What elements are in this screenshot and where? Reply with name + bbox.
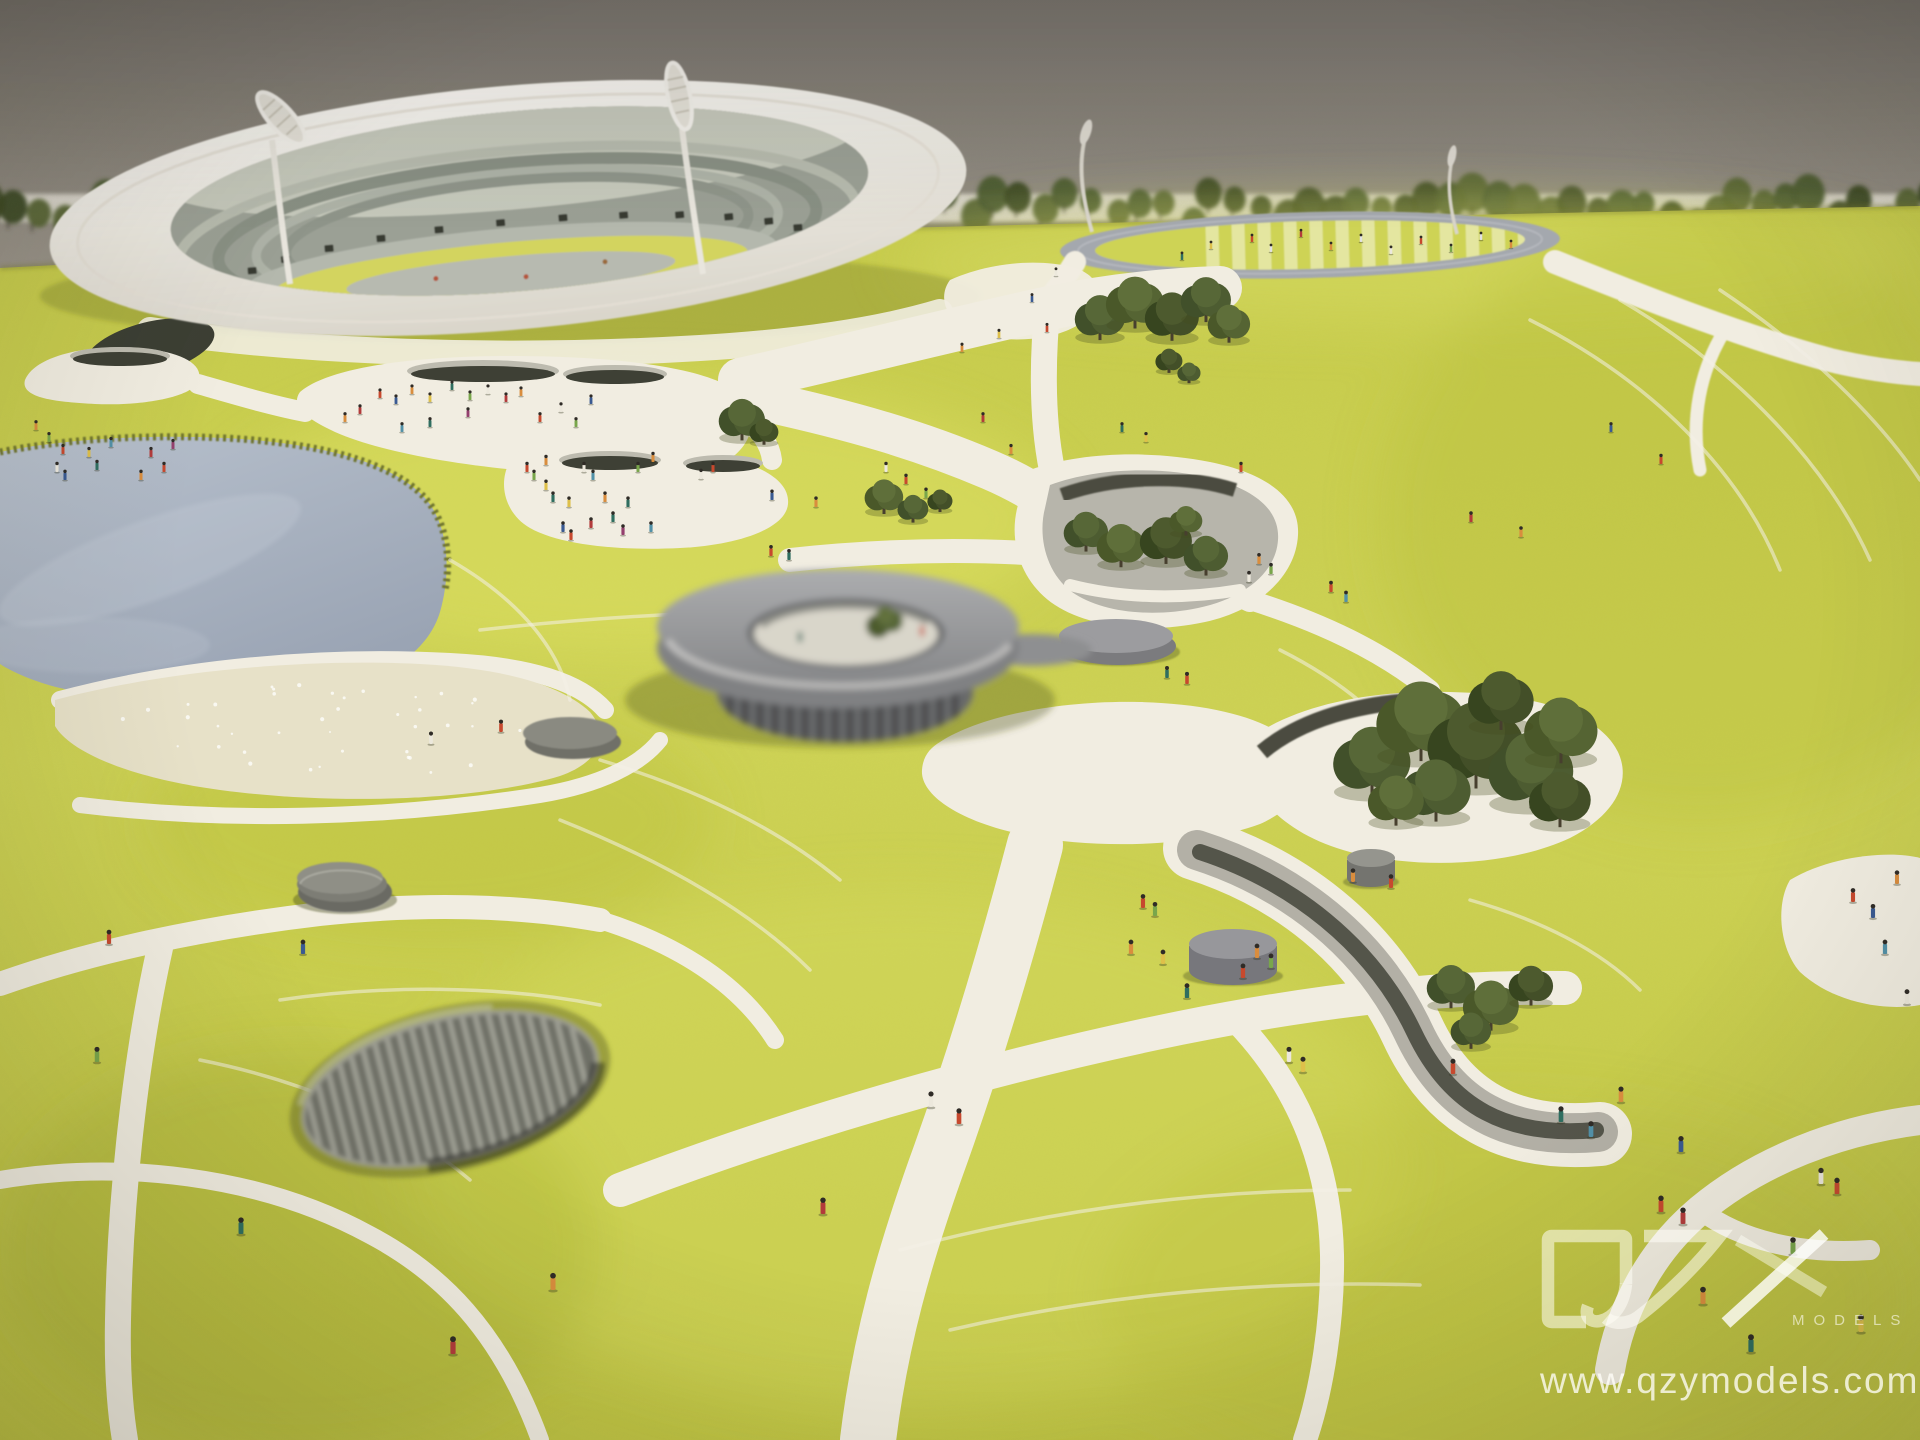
- scene-illustration: [0, 0, 1920, 1440]
- model-photo: MODELS www.qzymodels.com: [0, 0, 1920, 1440]
- disc-near-ring: [523, 717, 621, 759]
- pavilion-cylinder: [1183, 929, 1283, 986]
